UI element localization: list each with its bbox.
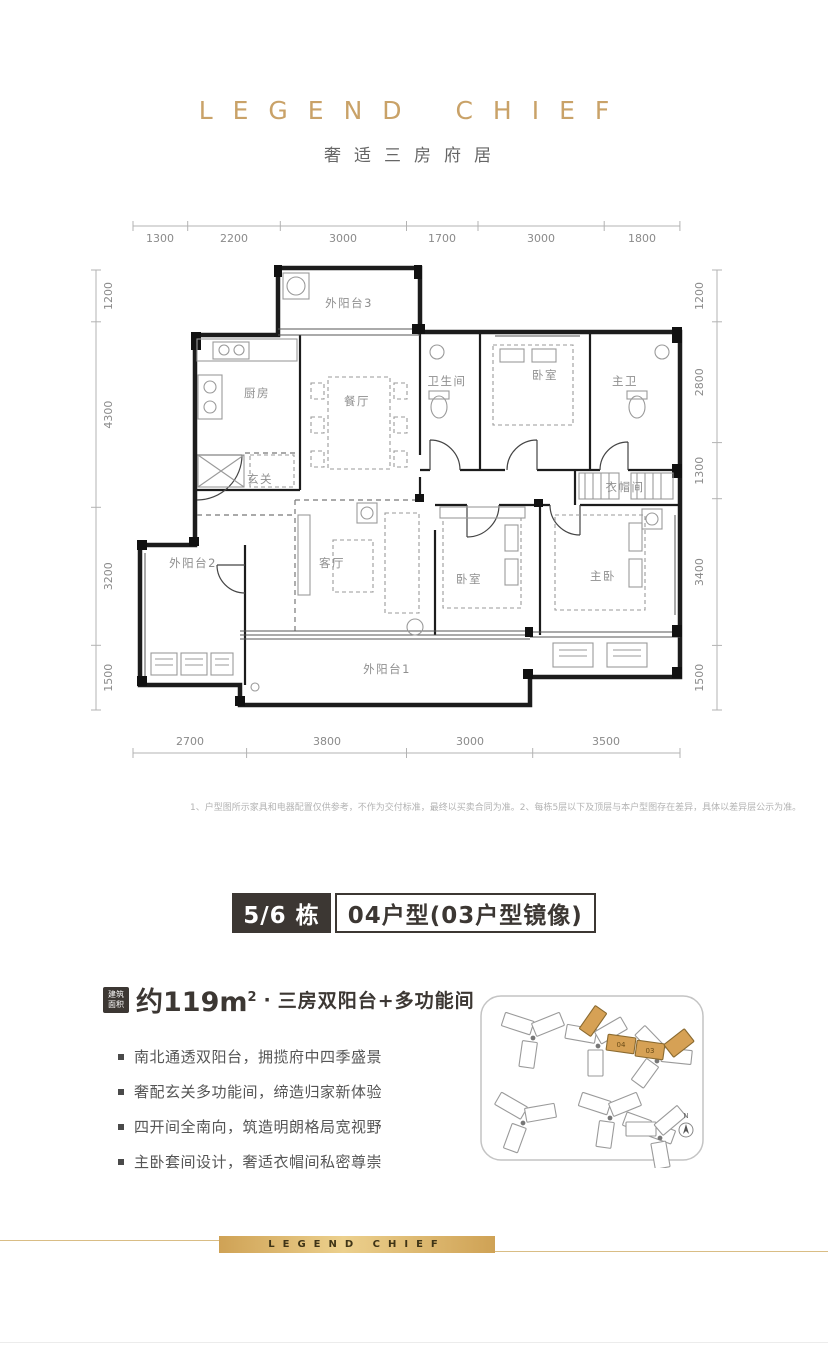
feature-item-2: 奢配玄关多功能间，缔造归家新体验 [118, 1081, 382, 1102]
area-summary: 建筑 面积 约119m2 · 三房双阳台+多功能间 [103, 980, 475, 1019]
bullet-square-icon [118, 1124, 124, 1130]
dim-right-3: 1300 [693, 457, 706, 485]
feature-text-3: 四开间全南向，筑造明朗格局宽视野 [134, 1118, 382, 1136]
dim-bottom-4: 3500 [592, 735, 620, 748]
dim-bottom-1: 2700 [176, 735, 204, 748]
separator-dot: · [264, 989, 271, 1011]
feature-text-4: 主卧套间设计，奢适衣帽间私密尊崇 [134, 1153, 382, 1171]
room-label-bedroom-top: 卧室 [532, 368, 558, 382]
dim-bottom-3: 3000 [456, 735, 484, 748]
room-label-kitchen: 厨房 [244, 386, 270, 400]
building-number: 5/6 栋 [232, 893, 330, 933]
north-label: N [683, 1112, 688, 1120]
walls [137, 265, 682, 706]
brand-subtitle: 奢适三房府居 [0, 141, 828, 166]
bullet-square-icon [118, 1054, 124, 1060]
bottom-rule [0, 1342, 828, 1343]
dim-top-1: 1300 [146, 232, 174, 245]
dim-top-5: 3000 [527, 232, 555, 245]
room-label-balcony1: 外阳台1 [363, 662, 411, 676]
room-label-foyer: 玄关 [247, 472, 273, 486]
dim-top-6: 1800 [628, 232, 656, 245]
room-label-master-bath: 主卫 [612, 374, 638, 388]
room-label-living: 客厅 [319, 556, 345, 570]
dim-right-4: 3400 [693, 558, 706, 586]
dim-top-4: 1700 [428, 232, 456, 245]
highlight-unit-label-04: 04 [617, 1041, 626, 1049]
door-arcs [197, 440, 628, 593]
dim-right-1: 1200 [693, 282, 706, 310]
brand-title: LEGEND CHIEF [0, 96, 828, 125]
dim-left-2: 4300 [102, 401, 115, 429]
feature-item-3: 四开间全南向，筑造明朗格局宽视野 [118, 1116, 382, 1137]
room-label-bedroom-bottom: 卧室 [456, 572, 482, 586]
header: LEGEND CHIEF 奢适三房府居 [0, 96, 828, 166]
dim-top-2: 2200 [220, 232, 248, 245]
dim-left-4: 1500 [102, 664, 115, 692]
bullet-square-icon [118, 1159, 124, 1165]
dim-bottom-2: 3800 [313, 735, 341, 748]
dim-right-2: 2800 [693, 368, 706, 396]
footer-brand: LEGEND CHIEF [268, 1239, 445, 1250]
page: LEGEND CHIEF 奢适三房府居 1300 2200 3000 1700 … [0, 0, 828, 1346]
gold-line-right [494, 1251, 828, 1252]
disclaimer-text: 1、户型图所示家具和电器配置仅供参考，不作为交付标准，最终以买卖合同为准。2、每… [190, 800, 801, 813]
room-label-balcony2: 外阳台2 [169, 556, 217, 570]
area-superscript: 2 [248, 990, 257, 1005]
room-label-bathroom: 卫生间 [428, 374, 467, 388]
room-label-balcony3: 外阳台3 [325, 296, 373, 310]
area-tag-line2: 面积 [108, 1000, 124, 1010]
room-label-dining: 餐厅 [344, 394, 370, 408]
feature-text-2: 奢配玄关多功能间，缔造归家新体验 [134, 1083, 382, 1101]
room-label-master-bedroom: 主卧 [590, 569, 616, 583]
site-map: 04 03 N [475, 988, 720, 1168]
feature-text-1: 南北通透双阳台，拥揽府中四季盛景 [134, 1048, 382, 1066]
area-value: 约119m2 [136, 980, 257, 1019]
feature-item-4: 主卧套间设计，奢适衣帽间私密尊崇 [118, 1151, 382, 1172]
feature-item-1: 南北通透双阳台，拥揽府中四季盛景 [118, 1046, 382, 1067]
area-tag-line1: 建筑 [108, 990, 124, 1000]
dim-right-5: 1500 [693, 664, 706, 692]
highlight-unit-label-03: 03 [646, 1047, 655, 1055]
bullet-square-icon [118, 1089, 124, 1095]
feature-list: 南北通透双阳台，拥揽府中四季盛景 奢配玄关多功能间，缔造归家新体验 四开间全南向… [118, 1046, 382, 1186]
dim-top-3: 3000 [329, 232, 357, 245]
footer-brand-box: LEGEND CHIEF [219, 1236, 495, 1253]
floor-plan: 1300 2200 3000 1700 3000 1800 2700 3800 … [85, 215, 735, 775]
room-label-cloakroom: 衣帽间 [606, 480, 645, 494]
unit-type: 04户型(03户型镜像) [335, 893, 596, 933]
dim-left-1: 1200 [102, 282, 115, 310]
unit-banner: 5/6 栋 04户型(03户型镜像) [0, 893, 828, 933]
dim-left-3: 3200 [102, 562, 115, 590]
gold-line-left [0, 1240, 219, 1241]
area-tag: 建筑 面积 [103, 987, 129, 1013]
area-description: 三房双阳台+多功能间 [278, 986, 475, 1013]
